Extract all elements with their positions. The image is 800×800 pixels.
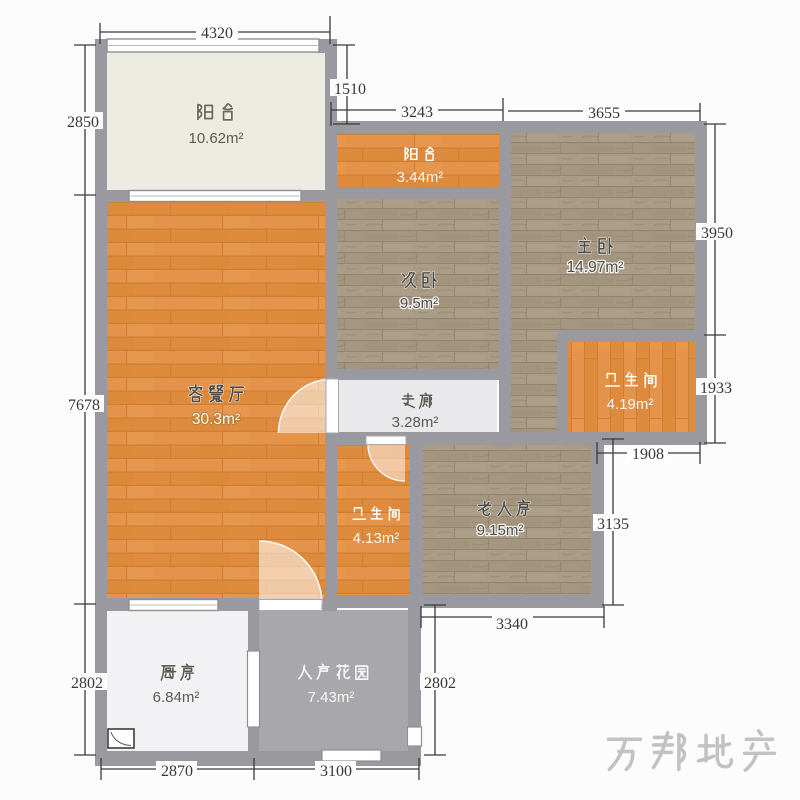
- svg-text:4320: 4320: [201, 25, 233, 42]
- svg-text:1510: 1510: [334, 81, 366, 98]
- svg-text:3.28m²: 3.28m²: [392, 414, 439, 431]
- svg-text:3243: 3243: [401, 104, 433, 121]
- svg-text:10.62m²: 10.62m²: [188, 130, 243, 147]
- svg-text:1908: 1908: [632, 446, 664, 463]
- svg-text:3135: 3135: [597, 516, 629, 533]
- svg-text:3655: 3655: [588, 105, 620, 122]
- svg-text:3100: 3100: [320, 763, 352, 780]
- svg-text:6.84m²: 6.84m²: [153, 689, 200, 706]
- svg-text:2870: 2870: [161, 763, 193, 780]
- svg-text:3340: 3340: [496, 616, 528, 633]
- svg-text:4.19m²: 4.19m²: [607, 396, 654, 413]
- svg-text:4.13m²: 4.13m²: [353, 530, 400, 547]
- svg-text:2802: 2802: [424, 675, 456, 692]
- svg-text:9.15m²: 9.15m²: [477, 522, 524, 539]
- svg-text:2850: 2850: [67, 114, 99, 131]
- svg-text:30.3m²: 30.3m²: [192, 411, 240, 428]
- svg-text:1933: 1933: [700, 380, 732, 397]
- svg-text:9.5m²: 9.5m²: [400, 295, 438, 312]
- svg-text:3950: 3950: [701, 225, 733, 242]
- svg-text:14.97m²: 14.97m²: [567, 259, 624, 276]
- svg-text:7.43m²: 7.43m²: [308, 689, 355, 706]
- svg-text:3.44m²: 3.44m²: [397, 169, 444, 186]
- svg-text:7678: 7678: [68, 397, 100, 414]
- svg-text:2802: 2802: [71, 675, 103, 692]
